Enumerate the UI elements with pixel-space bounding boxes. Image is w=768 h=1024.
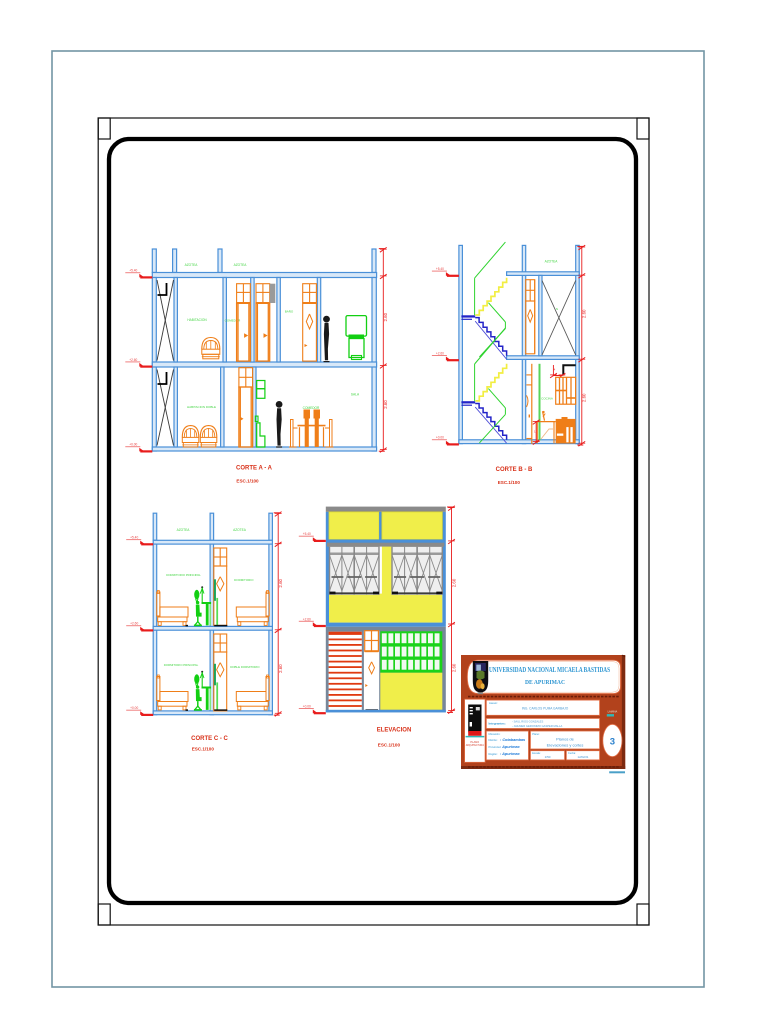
svg-text:Fecha:: Fecha: bbox=[568, 752, 576, 755]
svg-text:+5.40: +5.40 bbox=[130, 536, 138, 540]
svg-text:Planos de: Planos de bbox=[556, 737, 575, 742]
svg-text:+0.00: +0.00 bbox=[436, 436, 444, 440]
svg-text:CORTE A - A: CORTE A - A bbox=[236, 466, 273, 472]
svg-text:AZOTEA: AZOTEA bbox=[545, 259, 559, 263]
svg-text:2.60: 2.60 bbox=[451, 578, 456, 587]
svg-text:HABITACION DOBLE: HABITACION DOBLE bbox=[187, 405, 216, 409]
svg-text:CORTE C - C: CORTE C - C bbox=[191, 736, 228, 742]
svg-text:DE APURIMAC: DE APURIMAC bbox=[525, 679, 565, 686]
svg-text:AZOTEA: AZOTEA bbox=[234, 263, 248, 267]
svg-text:3: 3 bbox=[610, 737, 615, 748]
svg-text:Ubicación:: Ubicación: bbox=[488, 732, 500, 736]
svg-text:Escala:: Escala: bbox=[532, 752, 541, 755]
svg-text:ESC.1/100: ESC.1/100 bbox=[498, 480, 521, 485]
svg-text:+5.40: +5.40 bbox=[303, 532, 311, 536]
svg-text:AZOTEA: AZOTEA bbox=[177, 528, 191, 532]
svg-text:+0.00: +0.00 bbox=[129, 443, 137, 447]
svg-text:DOBLE DORMITORIO: DOBLE DORMITORIO bbox=[230, 665, 260, 669]
svg-text:UNIVERSIDAD NACIONAL MICAELA B: UNIVERSIDAD NACIONAL MICAELA BASTIDAS bbox=[489, 667, 610, 674]
svg-text:: Cotabambas: : Cotabambas bbox=[500, 738, 525, 742]
svg-text:ARQUITECTURA: ARQUITECTURA bbox=[466, 744, 485, 747]
svg-text:: Apurimac: : Apurimac bbox=[500, 745, 521, 749]
svg-text:: Apurimac: : Apurimac bbox=[500, 752, 521, 756]
svg-text:SALA: SALA bbox=[351, 393, 360, 397]
svg-text:COMEDOR: COMEDOR bbox=[303, 406, 320, 410]
svg-text:ESC.1/100: ESC.1/100 bbox=[236, 478, 259, 483]
svg-text:DORMITORIO PRINCIPAL: DORMITORIO PRINCIPAL bbox=[166, 573, 201, 577]
svg-text:DORMITORIO PRINCIPAL: DORMITORIO PRINCIPAL bbox=[164, 663, 199, 667]
svg-text:AZOTEA: AZOTEA bbox=[185, 263, 199, 267]
svg-text:Provincia:: Provincia: bbox=[489, 745, 501, 749]
svg-text:ING. CARLOS PUMA GARBAJO: ING. CARLOS PUMA GARBAJO bbox=[522, 706, 569, 710]
svg-text:+2.60: +2.60 bbox=[129, 358, 137, 362]
svg-text:2.60: 2.60 bbox=[383, 312, 388, 321]
svg-text:+5.40: +5.40 bbox=[436, 267, 444, 271]
svg-text:Elevaciones y cortes: Elevaciones y cortes bbox=[547, 743, 584, 748]
svg-text:PLANO: PLANO bbox=[470, 740, 479, 744]
svg-text:+2.60: +2.60 bbox=[436, 352, 444, 356]
svg-text:CORTE B - B: CORTE B - B bbox=[496, 467, 533, 473]
svg-text:ESC.1/100: ESC.1/100 bbox=[378, 742, 401, 747]
svg-text:AZOTEA: AZOTEA bbox=[233, 528, 247, 532]
svg-text:+2.60: +2.60 bbox=[130, 622, 138, 626]
svg-text:+0.00: +0.00 bbox=[303, 705, 311, 709]
svg-text:2.60: 2.60 bbox=[383, 400, 388, 409]
svg-text:Región:: Región: bbox=[489, 752, 499, 756]
svg-text:12/02/21: 12/02/21 bbox=[578, 755, 589, 759]
svg-text:Distrito:: Distrito: bbox=[489, 738, 498, 742]
svg-text:+2.60: +2.60 bbox=[303, 617, 311, 621]
svg-text:Integrantes:: Integrantes: bbox=[489, 722, 506, 726]
svg-text:BAÑO: BAÑO bbox=[285, 309, 294, 314]
svg-text:+0.00: +0.00 bbox=[130, 706, 138, 710]
svg-text:DORMITORIO: DORMITORIO bbox=[234, 578, 254, 582]
svg-text:2.60: 2.60 bbox=[582, 393, 587, 402]
svg-text:Asesor:: Asesor: bbox=[489, 701, 498, 705]
svg-text:N: N bbox=[556, 307, 558, 311]
svg-text:- JHILMER GERONIMO GASPER MA: - JHILMER GERONIMO GASPER MALLA bbox=[512, 724, 563, 728]
svg-text:2.60: 2.60 bbox=[278, 664, 283, 673]
svg-text:COMEDOR: COMEDOR bbox=[225, 319, 242, 323]
svg-text:+5.40: +5.40 bbox=[129, 269, 137, 273]
svg-text:Plano:: Plano: bbox=[532, 732, 540, 736]
svg-text:LAMINA: LAMINA bbox=[608, 710, 618, 714]
svg-text:HABITACION: HABITACION bbox=[187, 318, 207, 322]
svg-text:COCINA: COCINA bbox=[541, 397, 553, 401]
svg-text:1/50: 1/50 bbox=[545, 755, 551, 759]
svg-text:2.60: 2.60 bbox=[582, 309, 587, 318]
svg-text:2.60: 2.60 bbox=[451, 663, 456, 672]
svg-text:- SAUL RIOS GONZALES: - SAUL RIOS GONZALES bbox=[512, 720, 543, 724]
svg-text:ESC.1/100: ESC.1/100 bbox=[192, 746, 215, 751]
svg-text:2.60: 2.60 bbox=[278, 578, 283, 587]
svg-text:ELEVACION: ELEVACION bbox=[377, 728, 412, 734]
